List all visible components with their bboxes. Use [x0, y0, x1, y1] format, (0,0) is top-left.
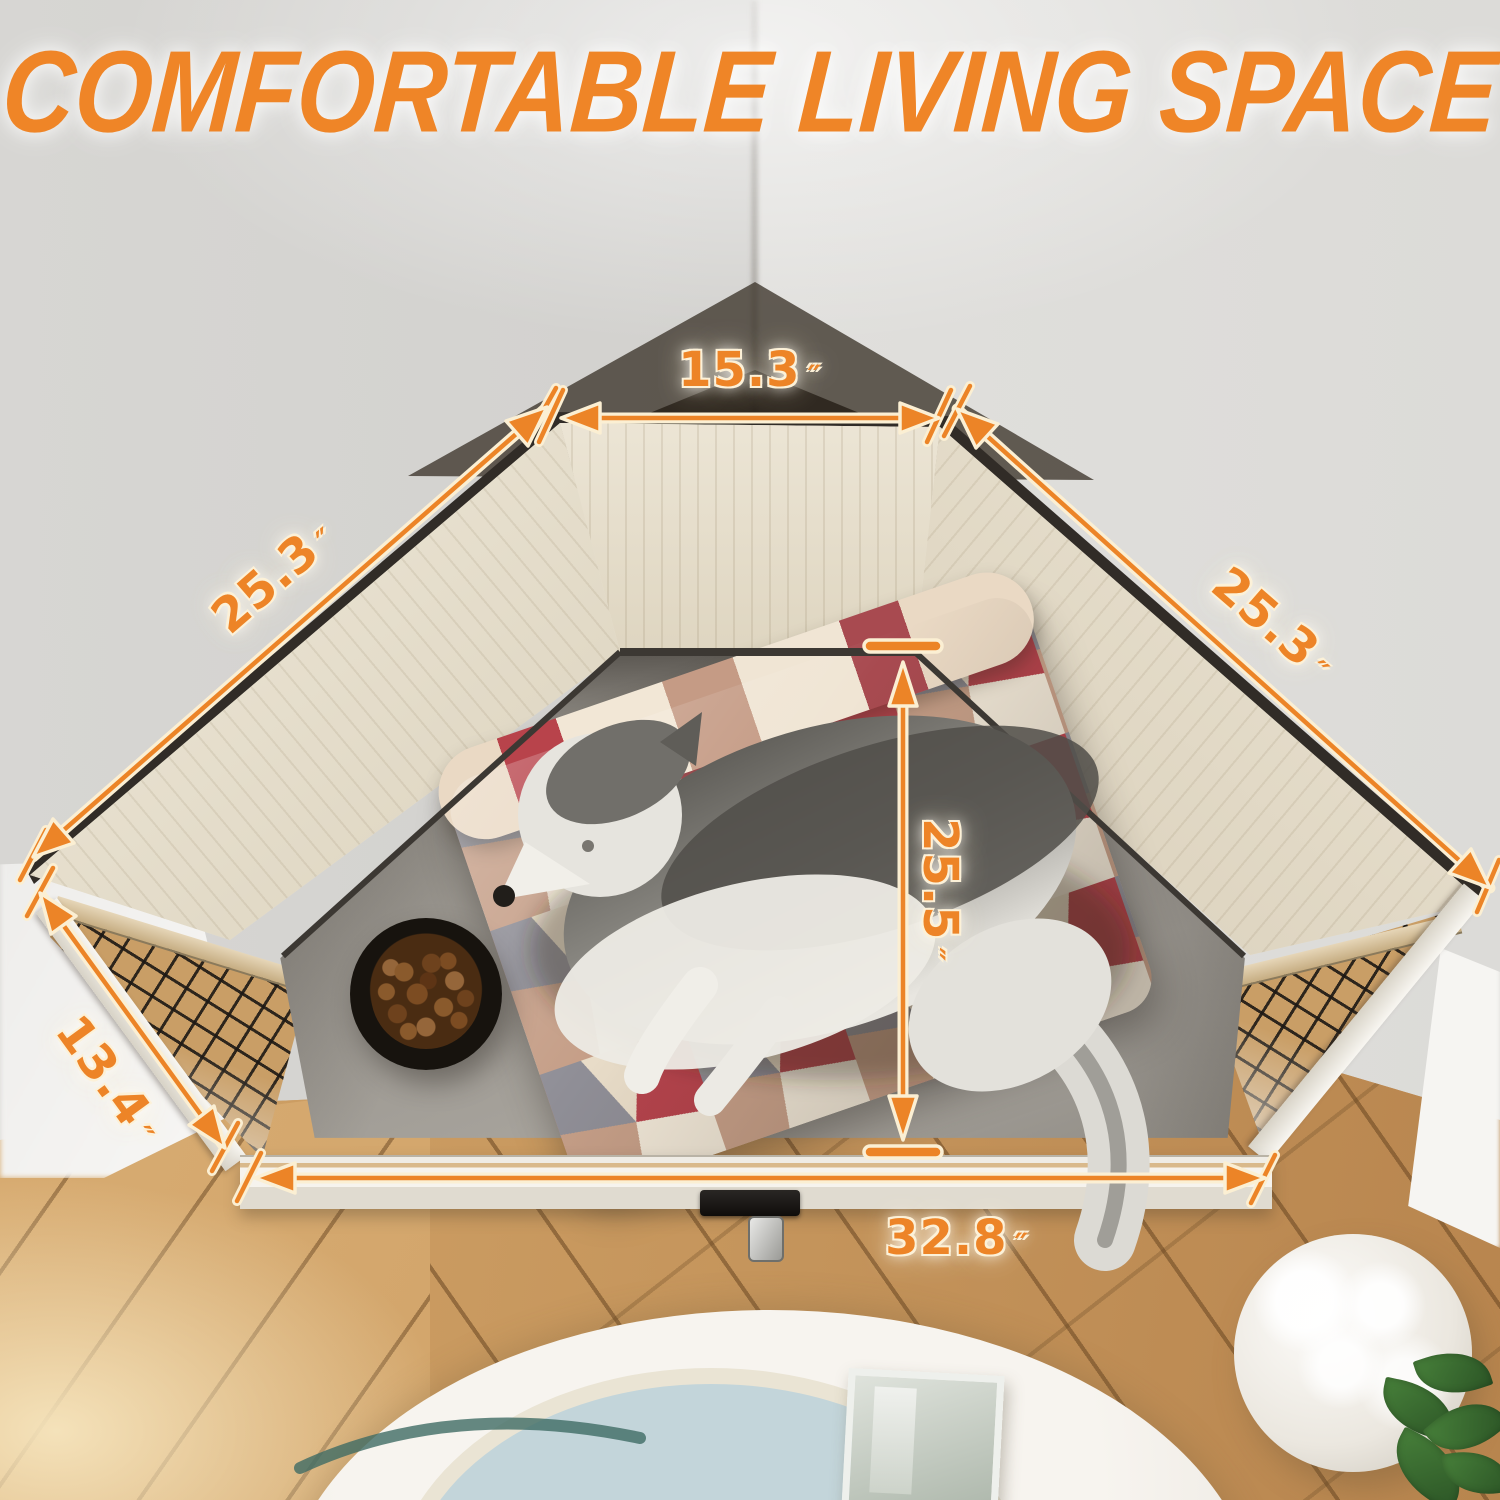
dim-value: 32.8 — [885, 1210, 1007, 1266]
dim-value: 15.3 — [678, 342, 800, 398]
dim-value: 25.5 — [912, 818, 968, 940]
rug-squiggle — [300, 1423, 640, 1468]
headline: COMFORTABLE LIVING SPACE — [0, 34, 1500, 150]
dim-interior-depth-label: 25.5″ — [916, 818, 964, 958]
dog-illustration — [0, 0, 1500, 1500]
dim-unit: ″ — [808, 359, 818, 394]
dim-front-width-label: 32.8″ — [885, 1214, 1025, 1262]
dim-unit: ″ — [1015, 1227, 1025, 1262]
product-infographic: COMFORTABLE LIVING SPACE 15.3″ 25.3″ 25.… — [0, 0, 1500, 1500]
dog-eye — [582, 840, 594, 852]
dim-unit: ″ — [916, 948, 951, 958]
dim-back-width-label: 15.3″ — [678, 346, 818, 394]
dog-nose — [493, 885, 515, 907]
